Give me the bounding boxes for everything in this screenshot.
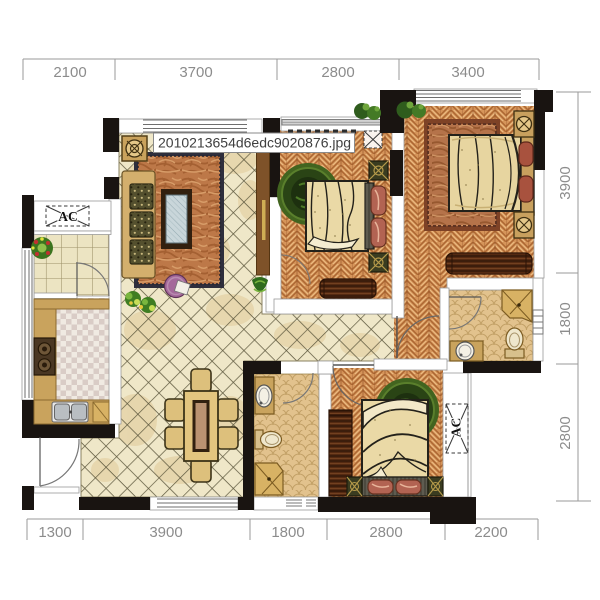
svg-text:1300: 1300	[38, 524, 71, 541]
svg-text:2100: 2100	[53, 64, 86, 81]
svg-text:AC: AC	[58, 209, 78, 224]
svg-text:3900: 3900	[557, 166, 574, 199]
svg-text:AC: AC	[449, 418, 464, 438]
svg-text:2010213654d6edc9020876.jpg: 2010213654d6edc9020876.jpg	[158, 135, 351, 151]
svg-text:3900: 3900	[149, 524, 182, 541]
svg-text:2200: 2200	[474, 524, 507, 541]
svg-text:2800: 2800	[321, 64, 354, 81]
svg-text:1800: 1800	[557, 302, 574, 335]
svg-text:2800: 2800	[369, 524, 402, 541]
svg-text:3400: 3400	[451, 64, 484, 81]
svg-text:3700: 3700	[179, 64, 212, 81]
svg-text:2800: 2800	[557, 416, 574, 449]
svg-text:1800: 1800	[271, 524, 304, 541]
